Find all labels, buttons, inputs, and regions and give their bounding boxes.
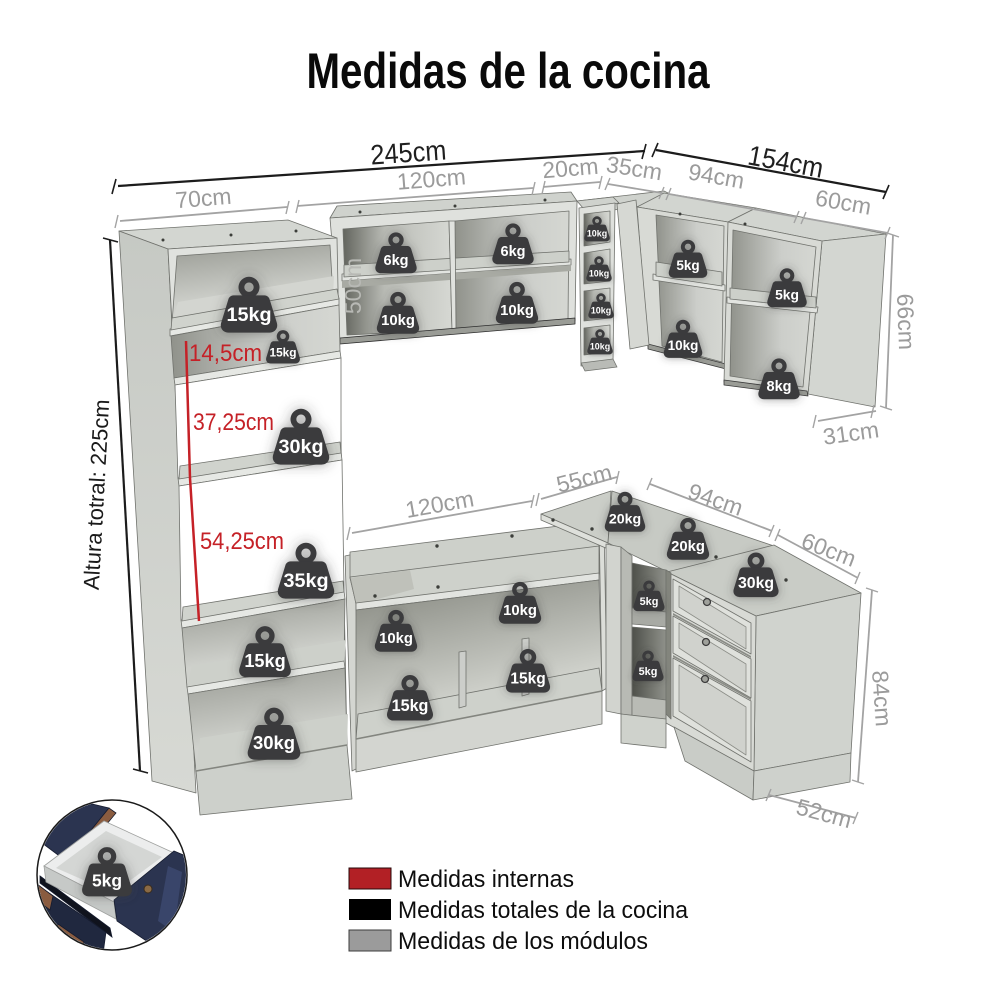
svg-text:70cm: 70cm [174, 183, 232, 213]
svg-text:20cm: 20cm [541, 153, 599, 183]
svg-text:8kg: 8kg [766, 379, 791, 395]
svg-text:15kg: 15kg [226, 304, 271, 326]
svg-text:60cm: 60cm [813, 184, 873, 219]
svg-text:154cm: 154cm [746, 139, 826, 183]
svg-text:10kg: 10kg [587, 228, 607, 238]
svg-text:30kg: 30kg [253, 732, 295, 753]
svg-text:120cm: 120cm [403, 485, 476, 523]
svg-text:35kg: 35kg [283, 570, 328, 592]
svg-text:55cm: 55cm [554, 459, 615, 498]
svg-text:10kg: 10kg [379, 631, 413, 647]
svg-text:31cm: 31cm [821, 416, 880, 450]
svg-text:5kg: 5kg [676, 258, 699, 273]
svg-text:14,5cm: 14,5cm [189, 340, 262, 367]
svg-text:15kg: 15kg [269, 346, 296, 360]
svg-text:5kg: 5kg [639, 666, 658, 678]
svg-text:Medidas de la cocina: Medidas de la cocina [307, 43, 711, 99]
svg-text:120cm: 120cm [396, 163, 467, 194]
svg-text:10kg: 10kg [500, 303, 534, 319]
svg-text:20kg: 20kg [671, 539, 705, 555]
svg-text:5kg: 5kg [92, 870, 122, 890]
svg-text:Medidas internas: Medidas internas [398, 866, 574, 893]
svg-text:66cm: 66cm [892, 293, 920, 350]
svg-text:35cm: 35cm [604, 151, 664, 185]
svg-text:54,25cm: 54,25cm [200, 528, 284, 555]
svg-text:10kg: 10kg [381, 313, 415, 329]
svg-text:10kg: 10kg [591, 305, 611, 315]
svg-text:30kg: 30kg [278, 436, 323, 458]
svg-text:5kg: 5kg [640, 596, 659, 608]
svg-text:52cm: 52cm [794, 793, 855, 833]
svg-text:6kg: 6kg [500, 244, 525, 260]
svg-text:Medidas de los módulos: Medidas de los módulos [398, 928, 648, 955]
svg-text:15kg: 15kg [244, 651, 285, 671]
svg-text:10kg: 10kg [668, 338, 699, 353]
svg-text:37,25cm: 37,25cm [193, 409, 274, 436]
svg-text:84cm: 84cm [867, 669, 897, 727]
svg-text:Medidas totales de la cocina: Medidas totales de la cocina [398, 897, 689, 924]
svg-text:10kg: 10kg [503, 603, 537, 619]
svg-text:10kg: 10kg [589, 268, 609, 278]
svg-text:94cm: 94cm [685, 478, 747, 521]
svg-text:Altura totral: 225cm: Altura totral: 225cm [79, 399, 115, 591]
svg-text:5kg: 5kg [775, 286, 799, 302]
svg-text:6kg: 6kg [383, 253, 408, 269]
svg-text:30kg: 30kg [738, 575, 774, 592]
svg-text:15kg: 15kg [510, 671, 545, 688]
svg-text:50cm: 50cm [340, 258, 366, 314]
svg-text:10kg: 10kg [590, 341, 610, 351]
svg-text:20kg: 20kg [609, 512, 641, 528]
svg-text:15kg: 15kg [392, 697, 429, 715]
